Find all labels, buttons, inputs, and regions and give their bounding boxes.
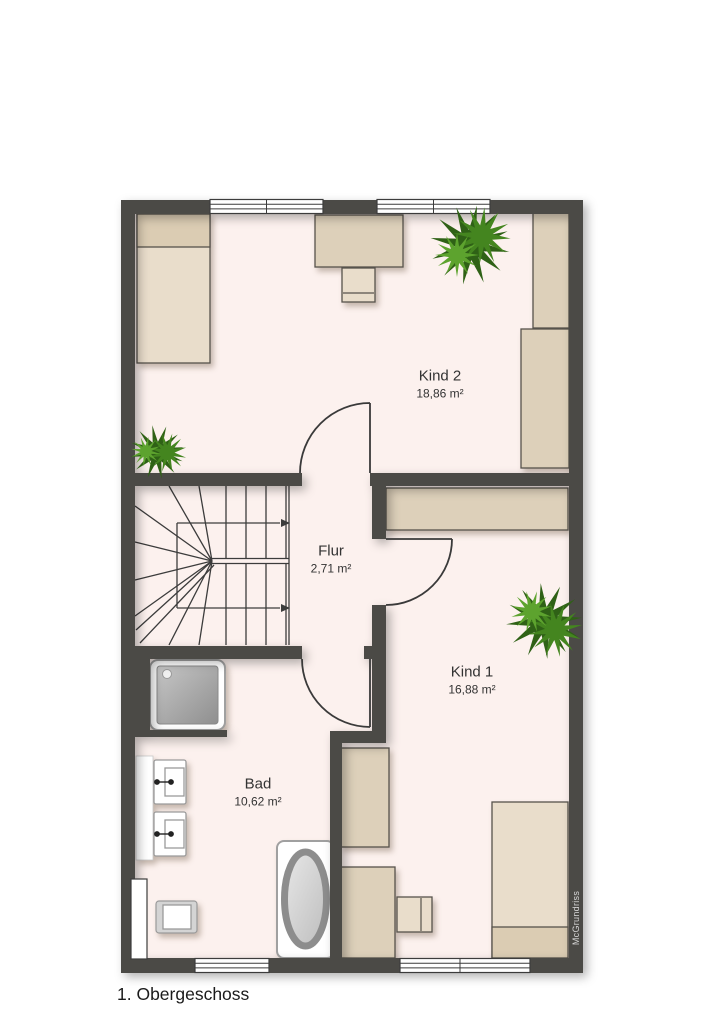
window-bottom-kind1: [400, 959, 530, 973]
floor-plan-page: Kind 2 18,86 m² Flur 2,71 m² Kind 1 16,8…: [0, 0, 724, 1024]
room-label-kind2: Kind 2 18,86 m²: [416, 366, 463, 401]
room-area: 16,88 m²: [448, 682, 495, 698]
wall-top: [121, 200, 583, 214]
wall-flur-kind1-upper: [372, 486, 386, 539]
room-label-bad: Bad 10,62 m²: [234, 774, 281, 809]
wall-bad-kind1-bar: [330, 731, 386, 743]
room-label-kind1: Kind 1 16,88 m²: [448, 662, 495, 697]
room-area: 18,86 m²: [416, 386, 463, 402]
bed-kind2-icon: [137, 214, 210, 363]
wardrobe-kind1-top-icon: [386, 488, 568, 530]
desk-kind2-icon: [315, 215, 403, 267]
wall-stair-bad: [121, 646, 302, 659]
wall-kind2-flur: [121, 473, 302, 486]
room-area: 2,71 m²: [311, 561, 352, 577]
wall-bad-kind1: [330, 743, 342, 958]
room-name: Kind 2: [416, 366, 463, 386]
shower-icon: [150, 660, 225, 730]
chair-kind2-icon: [342, 268, 375, 302]
wall-shower-stub: [135, 659, 150, 731]
room-name: Flur: [311, 541, 352, 561]
room-name: Bad: [234, 774, 281, 794]
room-name: Kind 1: [448, 662, 495, 682]
wall-left: [121, 200, 135, 973]
watermark-label: McGrundriss: [571, 891, 581, 945]
wall-bad-door-stub: [364, 646, 374, 659]
bathtub-icon: [277, 841, 334, 958]
bath-counter: [136, 756, 153, 860]
wardrobe-kind2-a-icon: [533, 213, 569, 328]
sink-icon: [154, 812, 186, 856]
wall-flur-kind1-lower: [372, 605, 386, 733]
toilet-icon: [156, 901, 197, 933]
wardrobe-kind1-west-icon: [341, 748, 389, 847]
wall-right: [569, 200, 583, 973]
bed-kind1-icon: [492, 802, 568, 958]
wall-kind2-kind1: [370, 473, 569, 486]
room-label-flur: Flur 2,71 m²: [311, 541, 352, 576]
window-top-right: [377, 200, 490, 214]
window-top-left: [210, 200, 323, 214]
chair-kind1-icon: [397, 897, 432, 932]
floor-plan-drawing: [0, 0, 724, 1024]
window-left-bad: [131, 879, 147, 959]
desk-kind1-icon: [341, 867, 395, 958]
room-area: 10,62 m²: [234, 794, 281, 810]
wardrobe-kind2-b-icon: [521, 329, 569, 468]
window-bottom-bad: [195, 959, 269, 973]
sink-icon: [154, 760, 186, 804]
floor-title: 1. Obergeschoss: [117, 984, 249, 1005]
wall-shower-partition: [135, 730, 227, 737]
